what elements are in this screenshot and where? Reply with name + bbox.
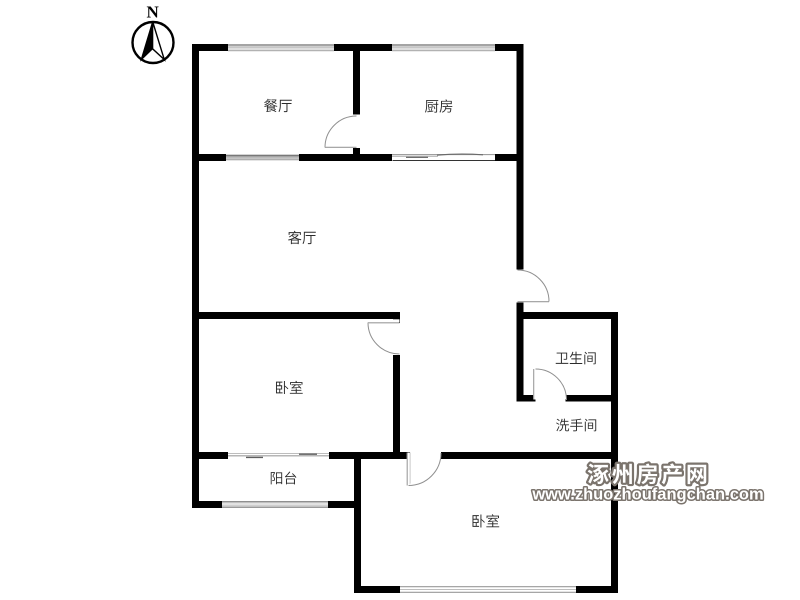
svg-text:N: N: [146, 3, 159, 22]
svg-text:www.zhuozhoufangchan.com: www.zhuozhoufangchan.com: [531, 486, 763, 504]
